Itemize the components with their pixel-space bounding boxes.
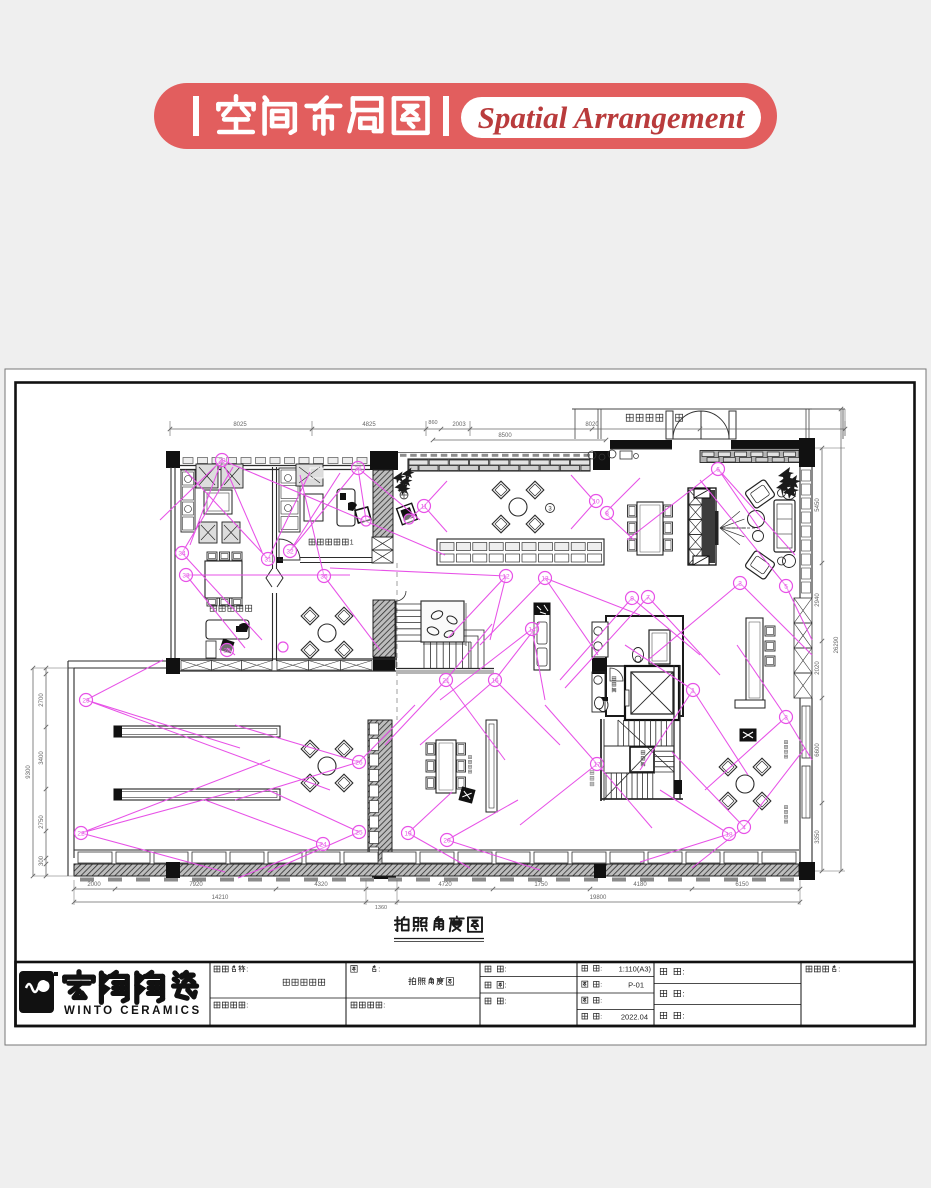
- svg-text:Spatial Arrangement: Spatial Arrangement: [478, 100, 746, 135]
- svg-text:1: 1: [350, 538, 354, 547]
- svg-text:3: 3: [784, 714, 788, 721]
- svg-text:9: 9: [630, 595, 634, 602]
- svg-text:5: 5: [784, 583, 788, 590]
- svg-text:860: 860: [428, 420, 437, 426]
- svg-text:WINTO CERAMICS: WINTO CERAMICS: [64, 1005, 202, 1017]
- svg-text:8: 8: [605, 510, 609, 517]
- svg-text:21: 21: [442, 677, 450, 684]
- svg-text:17: 17: [593, 761, 601, 768]
- svg-text:8500: 8500: [498, 433, 512, 439]
- svg-text::: :: [600, 1014, 602, 1021]
- svg-text:19: 19: [404, 830, 412, 837]
- svg-text:2: 2: [738, 580, 742, 587]
- svg-text::: :: [682, 1011, 684, 1020]
- svg-text:13: 13: [541, 575, 549, 582]
- svg-text::: :: [682, 967, 684, 976]
- svg-text:34: 34: [178, 550, 186, 557]
- svg-text:P-01: P-01: [628, 981, 644, 990]
- svg-text:33: 33: [182, 572, 190, 579]
- svg-text:1:110(A3): 1:110(A3): [619, 965, 652, 974]
- svg-text:22: 22: [77, 830, 85, 837]
- svg-text:4320: 4320: [314, 882, 328, 888]
- svg-text:2750: 2750: [39, 815, 45, 829]
- svg-text:1: 1: [691, 687, 695, 694]
- svg-text:18: 18: [725, 831, 733, 838]
- svg-text:25: 25: [355, 829, 363, 836]
- svg-text:14210: 14210: [212, 895, 229, 901]
- svg-text:28: 28: [223, 647, 231, 654]
- svg-text:2000: 2000: [87, 882, 101, 888]
- svg-text:2020: 2020: [815, 661, 821, 675]
- svg-text:1360: 1360: [375, 905, 387, 911]
- svg-text:12: 12: [502, 573, 510, 580]
- svg-text:32: 32: [286, 548, 294, 555]
- svg-text:26: 26: [355, 759, 363, 766]
- svg-text:2022.04: 2022.04: [621, 1013, 648, 1022]
- svg-text:9300: 9300: [26, 765, 32, 779]
- svg-text:6150: 6150: [735, 882, 749, 888]
- svg-text:35: 35: [320, 573, 328, 580]
- svg-text::: :: [682, 989, 684, 998]
- svg-text:3350: 3350: [815, 830, 821, 844]
- svg-text:11: 11: [421, 503, 428, 510]
- svg-text::: :: [505, 965, 507, 974]
- svg-text:3400: 3400: [39, 751, 45, 765]
- svg-text:19800: 19800: [590, 895, 607, 901]
- svg-text:10: 10: [592, 498, 600, 505]
- svg-text:2940: 2940: [815, 593, 821, 607]
- svg-text:6600: 6600: [815, 743, 821, 757]
- svg-text::: :: [378, 965, 380, 974]
- svg-text::: :: [600, 966, 602, 973]
- svg-text:4720: 4720: [438, 882, 452, 888]
- svg-text:31: 31: [264, 556, 272, 563]
- svg-text:8020: 8020: [585, 422, 599, 428]
- svg-text::: :: [383, 1001, 385, 1010]
- svg-text:6: 6: [716, 466, 720, 473]
- svg-text:26290: 26290: [834, 636, 840, 653]
- svg-text:16: 16: [491, 677, 499, 684]
- svg-text::: :: [505, 997, 507, 1006]
- svg-text:2700: 2700: [39, 693, 45, 707]
- svg-text::: :: [600, 998, 602, 1005]
- svg-text:300: 300: [39, 855, 45, 866]
- svg-text:7: 7: [646, 594, 650, 601]
- svg-text::: :: [246, 965, 248, 974]
- svg-text:1750: 1750: [534, 882, 548, 888]
- svg-text::: :: [838, 965, 840, 974]
- svg-text::: :: [246, 1001, 248, 1010]
- svg-text::: :: [600, 982, 602, 989]
- svg-text:4825: 4825: [362, 422, 376, 428]
- svg-text:7920: 7920: [189, 882, 203, 888]
- svg-text:2003: 2003: [452, 422, 466, 428]
- svg-text:5450: 5450: [815, 498, 821, 512]
- svg-text:24: 24: [319, 841, 327, 848]
- svg-text:20: 20: [443, 837, 451, 844]
- svg-text:14: 14: [528, 626, 536, 633]
- svg-text:36: 36: [354, 465, 362, 472]
- svg-text:8025: 8025: [233, 422, 247, 428]
- svg-text::: :: [505, 981, 507, 990]
- svg-text:23: 23: [82, 697, 90, 704]
- svg-text:29: 29: [218, 457, 226, 464]
- svg-text:4180: 4180: [633, 882, 647, 888]
- svg-text:4: 4: [742, 824, 746, 831]
